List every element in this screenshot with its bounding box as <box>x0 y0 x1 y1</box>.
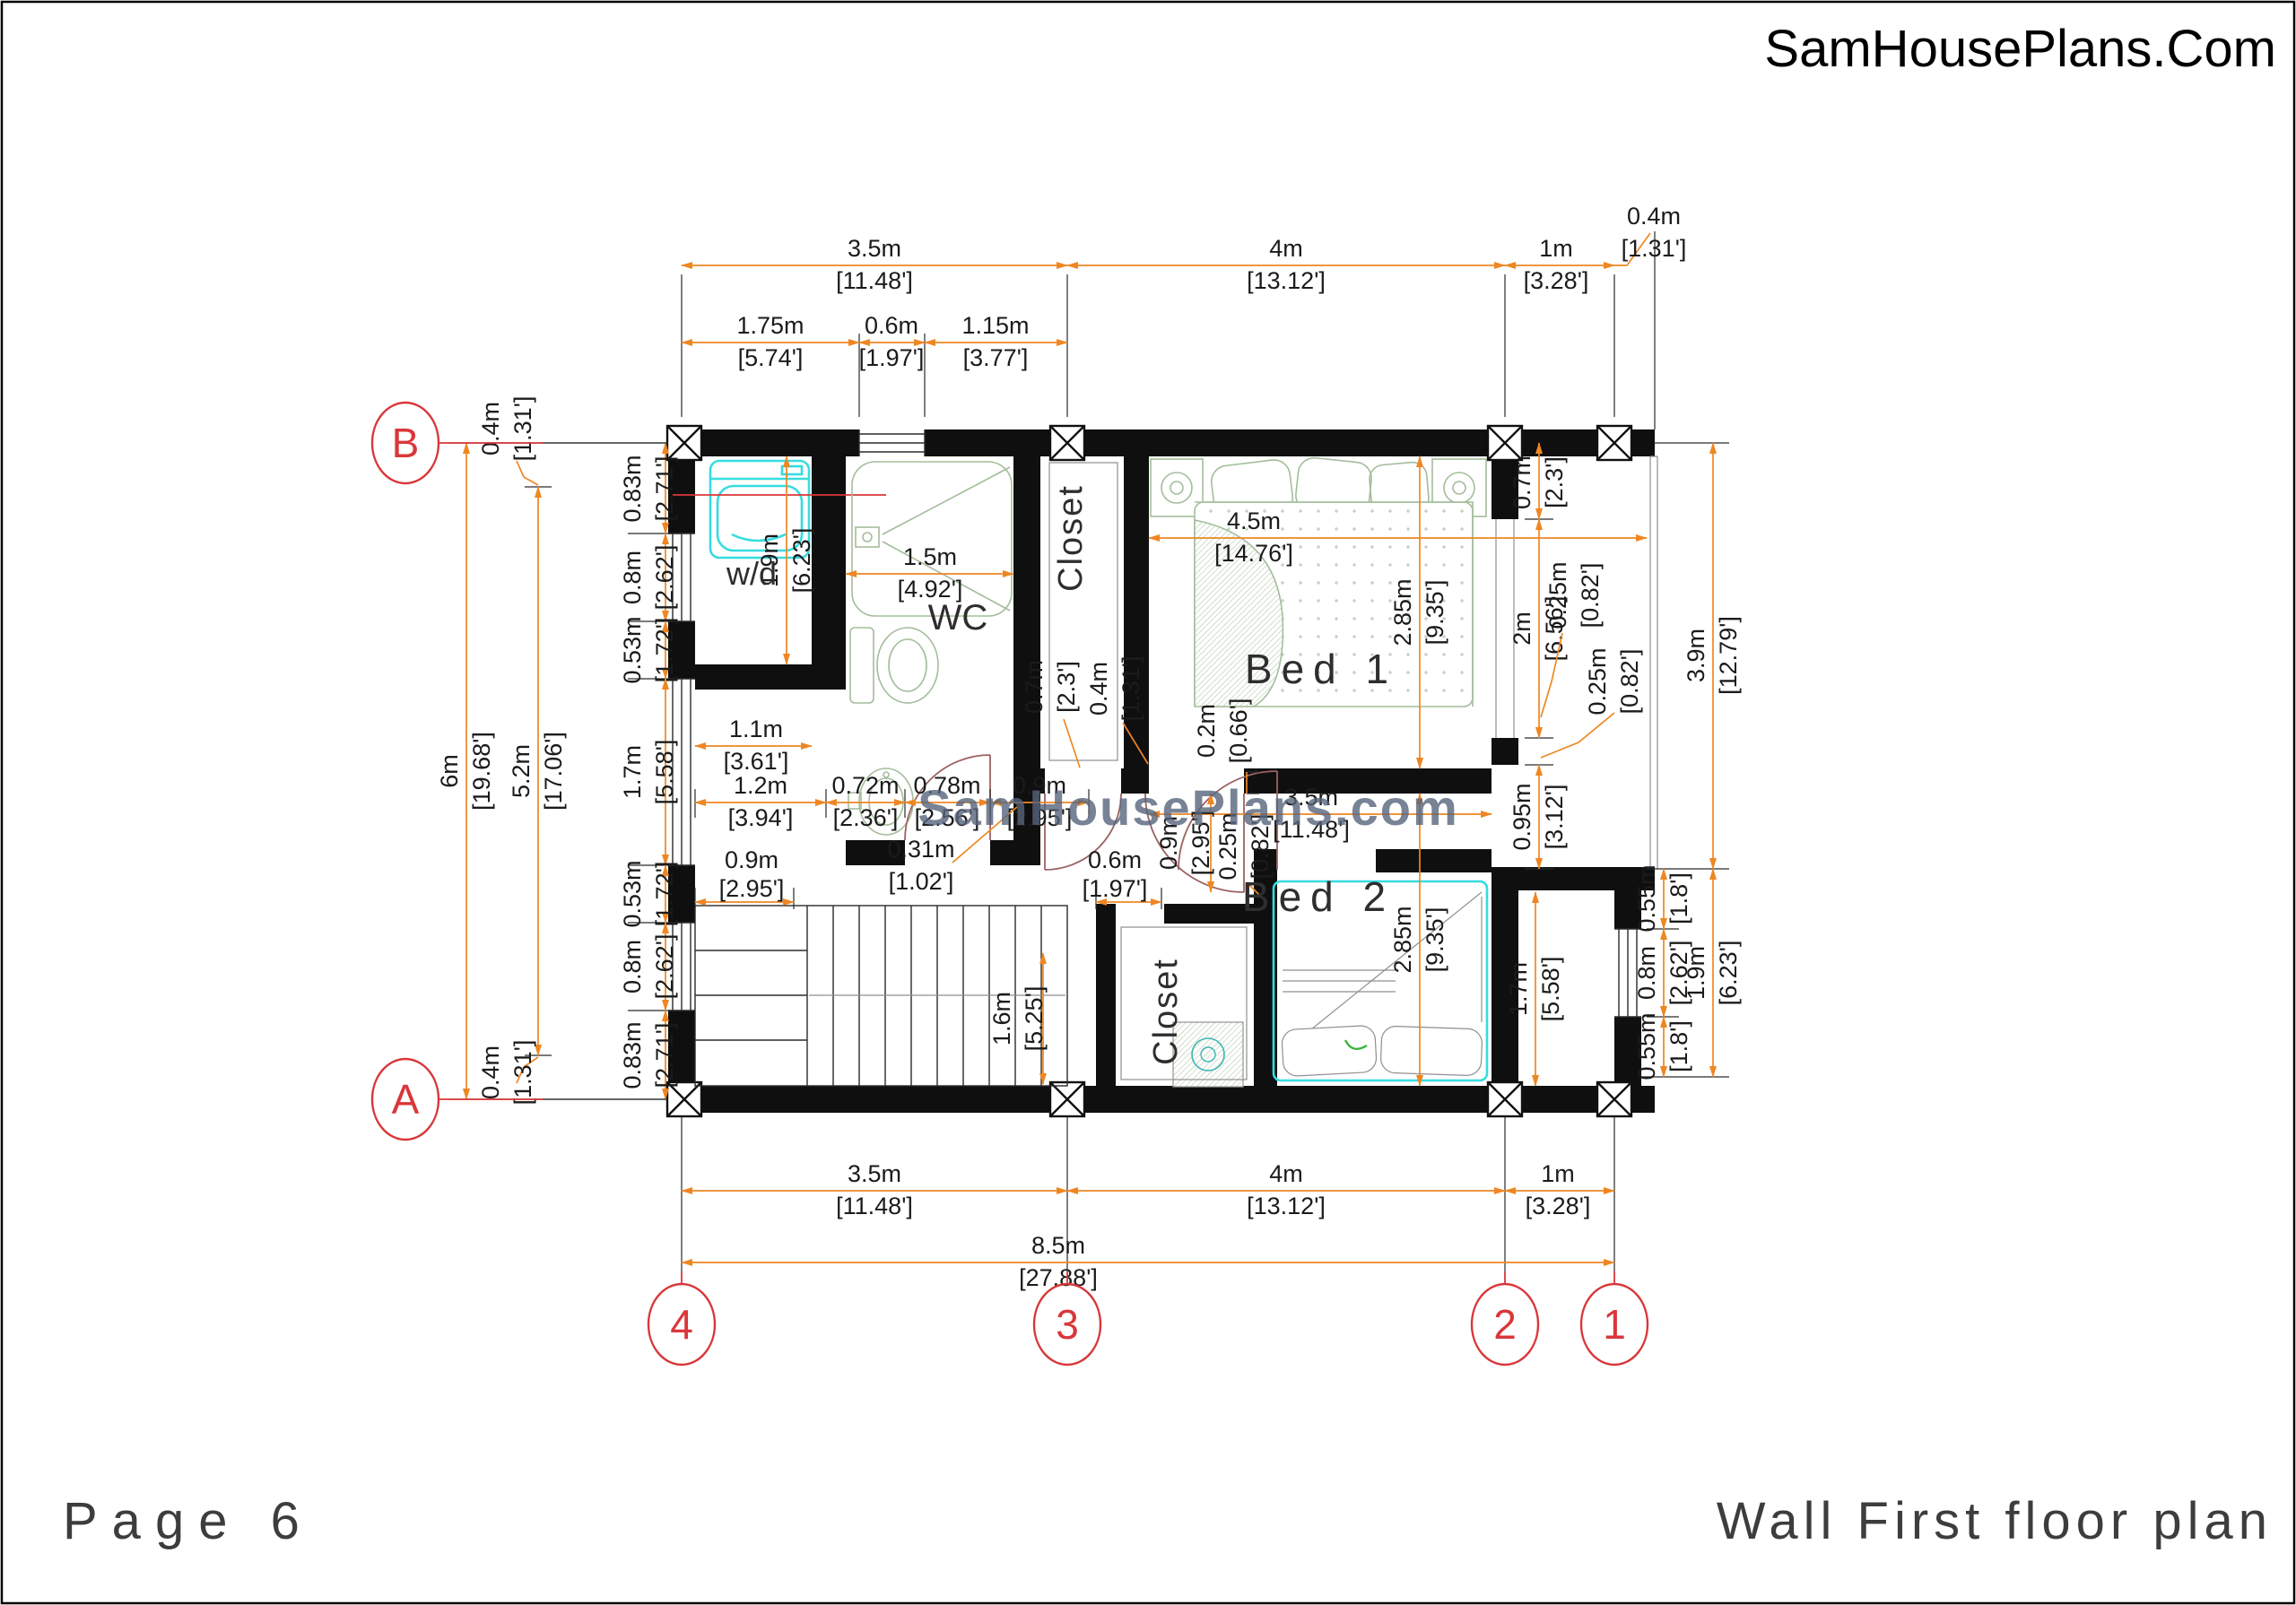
plan-title: Wall First floor plan <box>1717 1492 2273 1550</box>
room-label-closet-top: Closet <box>1052 484 1090 592</box>
post <box>1488 426 1522 460</box>
svg-text:A: A <box>392 1076 420 1123</box>
post <box>1488 1082 1522 1116</box>
floor-plan-sheet: 3.5m[11.48'] 4m[13.12'] 1m[3.28'] 0.4m[1… <box>0 0 2296 1605</box>
room-label-bed1: Bed 1 <box>1245 646 1397 692</box>
svg-text:B: B <box>392 420 420 466</box>
svg-text:3: 3 <box>1056 1301 1079 1348</box>
svg-text:4: 4 <box>670 1301 693 1348</box>
page-number: Page 6 <box>63 1492 314 1550</box>
post <box>1050 426 1084 460</box>
watermark: SamHousePlans.com <box>918 779 1459 836</box>
room-label-wd: w/d <box>726 555 777 592</box>
post <box>1597 1082 1631 1116</box>
site-logo: SamHousePlans.Com <box>1764 20 2276 78</box>
post <box>1597 426 1631 460</box>
post <box>667 426 701 460</box>
room-label-wc: WC <box>928 598 988 638</box>
svg-text:2: 2 <box>1493 1301 1517 1348</box>
room-label-bed2: Bed 2 <box>1242 873 1395 920</box>
svg-text:1: 1 <box>1603 1301 1626 1348</box>
room-label-closet-bottom: Closet <box>1147 958 1185 1065</box>
post <box>1050 1082 1084 1116</box>
window-top-shower <box>859 429 925 456</box>
